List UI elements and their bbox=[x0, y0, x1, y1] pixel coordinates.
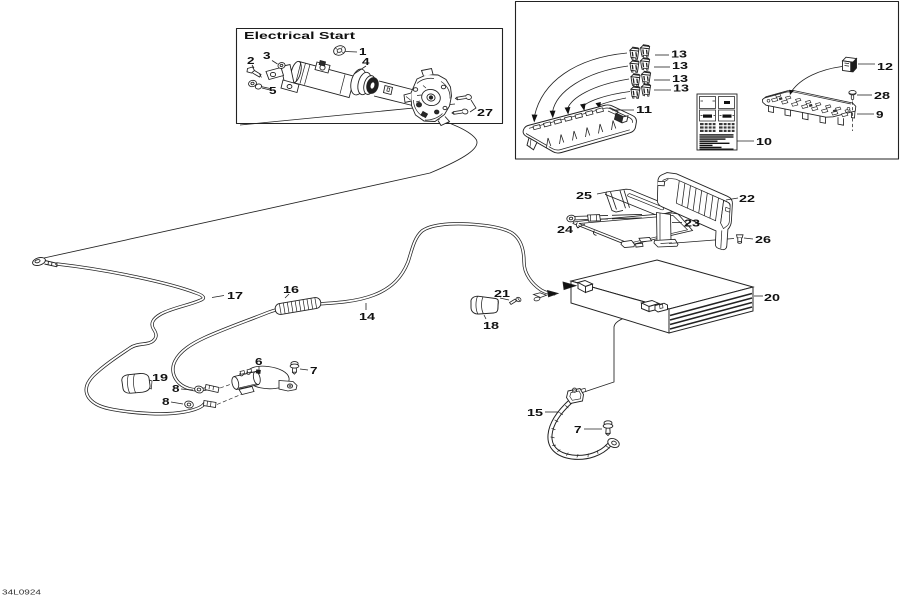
svg-text:6: 6 bbox=[255, 357, 263, 368]
svg-text:24: 24 bbox=[557, 225, 574, 236]
svg-text:5: 5 bbox=[269, 86, 277, 97]
svg-text:13: 13 bbox=[673, 84, 690, 95]
svg-text:8: 8 bbox=[172, 384, 180, 395]
svg-text:27: 27 bbox=[477, 108, 494, 119]
svg-text:18: 18 bbox=[483, 321, 500, 332]
svg-text:28: 28 bbox=[874, 91, 891, 102]
svg-text:19: 19 bbox=[152, 373, 169, 384]
svg-text:14: 14 bbox=[359, 312, 376, 323]
svg-text:15: 15 bbox=[527, 408, 544, 419]
svg-text:23: 23 bbox=[684, 219, 701, 230]
svg-text:34L0924: 34L0924 bbox=[2, 588, 41, 597]
svg-text:12: 12 bbox=[877, 62, 894, 73]
svg-text:10: 10 bbox=[756, 137, 773, 148]
svg-text:13: 13 bbox=[672, 61, 689, 72]
svg-text:7: 7 bbox=[574, 425, 582, 436]
svg-text:11: 11 bbox=[636, 105, 653, 116]
svg-text:21: 21 bbox=[494, 289, 511, 300]
svg-text:3: 3 bbox=[263, 51, 271, 62]
svg-text:9: 9 bbox=[876, 110, 884, 121]
svg-text:4: 4 bbox=[362, 57, 370, 68]
svg-text:8: 8 bbox=[162, 397, 170, 408]
svg-text:Electrical Start: Electrical Start bbox=[244, 30, 356, 42]
svg-text:2: 2 bbox=[247, 56, 255, 67]
svg-text:13: 13 bbox=[671, 50, 688, 61]
svg-text:20: 20 bbox=[764, 293, 781, 304]
svg-text:16: 16 bbox=[283, 285, 300, 296]
svg-text:26: 26 bbox=[755, 235, 772, 246]
svg-text:22: 22 bbox=[739, 194, 756, 205]
svg-text:7: 7 bbox=[310, 366, 318, 377]
svg-text:25: 25 bbox=[576, 191, 593, 202]
svg-text:17: 17 bbox=[227, 291, 244, 302]
